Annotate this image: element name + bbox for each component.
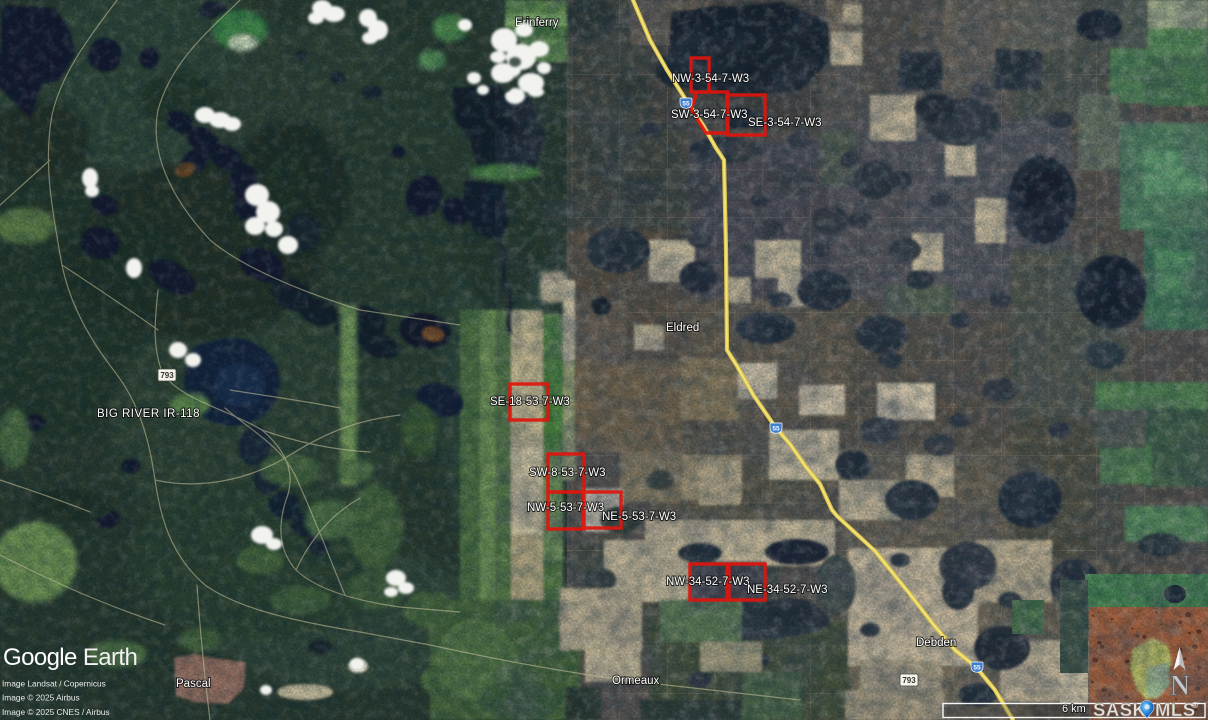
svg-text:®: ® bbox=[1192, 701, 1198, 710]
svg-text:NE-34-52-7-W3: NE-34-52-7-W3 bbox=[747, 584, 828, 596]
svg-text:Pascal: Pascal bbox=[176, 678, 211, 690]
svg-text:SW-8-53-7-W3: SW-8-53-7-W3 bbox=[529, 467, 605, 479]
svg-text:55: 55 bbox=[973, 665, 981, 672]
svg-text:55: 55 bbox=[682, 101, 690, 108]
svg-text:SE-18-53-7-W3: SE-18-53-7-W3 bbox=[490, 396, 570, 408]
svg-text:NW-5-53-7-W3: NW-5-53-7-W3 bbox=[527, 502, 604, 514]
svg-text:NE-5-53-7-W3: NE-5-53-7-W3 bbox=[602, 511, 676, 523]
svg-text:Image © 2025 Airbus: Image © 2025 Airbus bbox=[2, 693, 80, 703]
svg-text:Image Landsat / Copernicus: Image Landsat / Copernicus bbox=[2, 679, 106, 689]
svg-text:6 km: 6 km bbox=[1062, 703, 1086, 715]
svg-text:793: 793 bbox=[902, 676, 916, 685]
svg-text:793: 793 bbox=[160, 371, 174, 380]
svg-text:Ormeaux: Ormeaux bbox=[612, 675, 660, 687]
svg-text:NW-34-52-7-W3: NW-34-52-7-W3 bbox=[666, 576, 750, 588]
svg-text:N: N bbox=[1170, 669, 1190, 702]
svg-text:BIG RIVER IR-118: BIG RIVER IR-118 bbox=[97, 408, 200, 420]
svg-text:Google Earth: Google Earth bbox=[3, 644, 137, 671]
svg-text:Debden: Debden bbox=[916, 637, 956, 649]
svg-text:SW-3-54-7-W3: SW-3-54-7-W3 bbox=[671, 109, 747, 121]
svg-text:Image © 2025 CNES / Airbus: Image © 2025 CNES / Airbus bbox=[2, 707, 110, 717]
svg-text:55: 55 bbox=[772, 426, 780, 433]
svg-text:NW-3-54-7-W3: NW-3-54-7-W3 bbox=[672, 73, 749, 85]
svg-text:SE-3-54-7-W3: SE-3-54-7-W3 bbox=[748, 117, 822, 129]
svg-text:SASK: SASK bbox=[1093, 699, 1147, 720]
svg-text:Eldred: Eldred bbox=[666, 322, 699, 334]
